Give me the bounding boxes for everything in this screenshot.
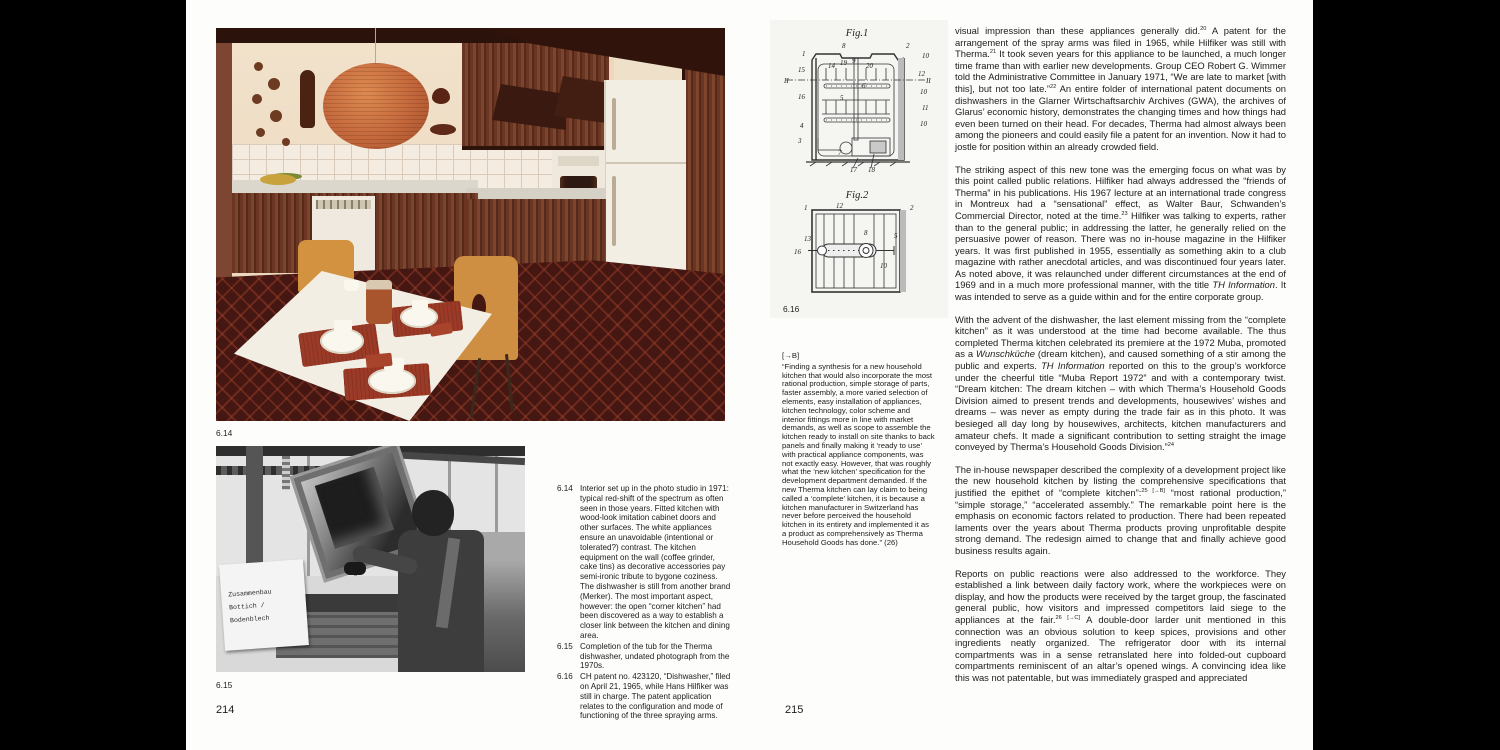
coffee-grinder (300, 70, 315, 128)
worker-glove (344, 562, 366, 575)
napkin (365, 353, 392, 369)
caption-text: Interior set up in the photo studio in 1… (580, 484, 733, 641)
svg-text:10: 10 (880, 262, 888, 270)
svg-text:19: 19 (840, 59, 848, 67)
body-paragraph: With the advent of the dishwasher, the l… (955, 314, 1286, 453)
caption-number: 6.14 (557, 484, 580, 641)
svg-text:10: 10 (920, 120, 928, 128)
svg-text:5: 5 (894, 232, 898, 240)
caption-b-block: [→B] “Finding a synthesis for a new hous… (782, 352, 935, 548)
svg-text:5: 5 (840, 94, 844, 102)
body-text-column: visual impression than these appliances … (955, 25, 1286, 694)
caption-list: 6.14 Interior set up in the photo studio… (557, 484, 733, 722)
kitchen-refrigerator (604, 80, 686, 294)
kitchen-photo (216, 28, 725, 421)
workshop-photo-label: 6.15 (216, 680, 232, 690)
book-spread: 6.14 Zusammenbau Bottich / Bodenblech 6.… (186, 0, 1313, 750)
caption-b-text: “Finding a synthesis for a new household… (782, 362, 935, 547)
wall-decor (270, 110, 282, 122)
patent-fig2-title: Fig.2 (782, 190, 932, 201)
juice-jug (366, 280, 392, 324)
svg-text:2: 2 (906, 42, 910, 50)
svg-text:14: 14 (828, 62, 836, 70)
worker-body (398, 530, 484, 672)
cup (334, 320, 352, 333)
svg-text:16: 16 (798, 93, 806, 101)
wall-decor (268, 78, 280, 90)
kitchen-photo-label: 6.14 (216, 428, 232, 438)
svg-text:7: 7 (838, 149, 842, 157)
orange-pendant-lamp (323, 63, 429, 149)
sign-line-2: Bottich / Bodenblech (229, 596, 308, 627)
svg-text:16: 16 (794, 248, 802, 256)
svg-text:8: 8 (842, 42, 846, 50)
svg-text:3: 3 (797, 137, 802, 145)
svg-text:12: 12 (918, 70, 926, 78)
svg-text:10: 10 (920, 88, 928, 96)
wall-decor-fish-mold (430, 124, 456, 135)
svg-text:II: II (783, 77, 789, 85)
svg-text:10: 10 (922, 52, 930, 60)
workshop-sign: Zusammenbau Bottich / Bodenblech (219, 559, 309, 651)
wall-decor (254, 62, 263, 71)
caption-number: 6.16 (557, 672, 580, 721)
kitchen-counter (466, 188, 606, 199)
wall-decor (282, 138, 290, 146)
svg-text:2: 2 (910, 204, 914, 212)
page-number-left: 214 (216, 704, 234, 716)
patent-figure-2: 112213851610 (782, 204, 932, 298)
svg-text:9: 9 (852, 57, 856, 65)
svg-text:6: 6 (862, 82, 866, 90)
svg-text:20: 20 (866, 62, 874, 70)
spring (282, 456, 290, 490)
wall-decor-heart (432, 88, 450, 104)
body-paragraph: The striking aspect of this new tone was… (955, 164, 1286, 303)
caption-b-marker: [→B] (782, 352, 935, 361)
fruit-bowl (260, 174, 296, 185)
svg-text:8: 8 (864, 229, 868, 237)
svg-text:12: 12 (836, 202, 844, 210)
svg-text:1: 1 (802, 50, 806, 58)
body-paragraph: Reports on public reactions were also ad… (955, 568, 1286, 684)
svg-text:11: 11 (922, 104, 928, 112)
caption-6-14: 6.14 Interior set up in the photo studio… (557, 484, 733, 641)
caption-text: CH patent no. 423120, “Dishwasher,” file… (580, 672, 733, 721)
workshop-photo: Zusammenbau Bottich / Bodenblech (216, 446, 525, 672)
svg-text:II: II (925, 77, 931, 85)
body-paragraph: The in-house newspaper described the com… (955, 464, 1286, 557)
svg-text:1: 1 (804, 204, 808, 212)
wall-decor (252, 94, 262, 104)
svg-text:4: 4 (800, 122, 804, 130)
svg-text:18: 18 (868, 166, 876, 174)
caption-6-15: 6.15 Completion of the tub for the Therm… (557, 642, 733, 671)
cup (344, 280, 359, 291)
page-number-right: 215 (785, 704, 803, 716)
caption-text: Completion of the tub for the Therma dis… (580, 642, 733, 671)
svg-text:13: 13 (804, 235, 812, 243)
cup (412, 300, 428, 312)
worker-head (412, 490, 454, 536)
patent-fig1-title: Fig.1 (782, 28, 932, 39)
wall-decor (256, 128, 265, 137)
body-paragraph: visual impression than these appliances … (955, 25, 1286, 153)
svg-text:17: 17 (850, 166, 858, 174)
patent-figure-label: 6.16 (783, 304, 799, 314)
svg-text:15: 15 (798, 66, 806, 74)
caption-number: 6.15 (557, 642, 580, 671)
lamp-cord (375, 28, 376, 66)
caption-6-16: 6.16 CH patent no. 423120, “Dishwasher,”… (557, 672, 733, 721)
patent-figure-1: 18210151419920612IIII1651011410371718 (782, 42, 932, 176)
